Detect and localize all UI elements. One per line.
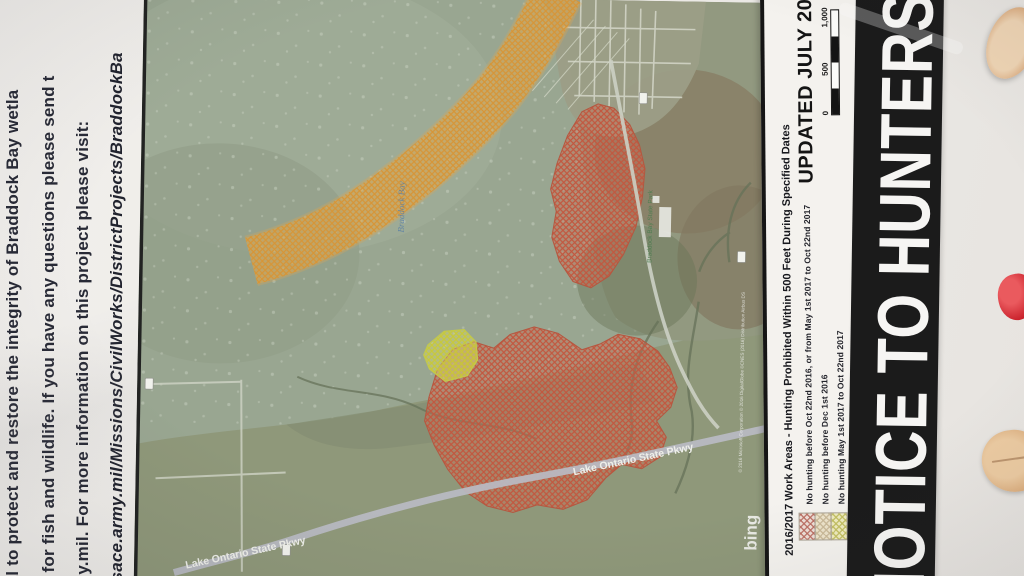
legend-swatch-cream-crosshatch (815, 512, 832, 540)
notice-line-url: usace.army.mil/Missions/CivilWorks/Distr… (107, 52, 127, 576)
scale-tick-500: 500 (821, 63, 830, 76)
legend-swatch-red-crosshatch (799, 513, 816, 541)
legend-item-2: No hunting before Dec 1st 2016 (819, 374, 830, 504)
notice-title-banner: NOTICE TO HUNTERS (847, 0, 944, 576)
notice-line-1: ical to protect and restore the integrit… (3, 90, 23, 576)
scale-bar: 0 500 1,000 (820, 5, 840, 115)
legend-item-3: No hunting May 1st 2017 to Oct 22nd 2017 (835, 330, 847, 504)
fingertip-bottom (978, 426, 1024, 496)
satellite-map-canvas: Lake Ontario State Pkwy Lake Ontario Sta… (134, 0, 780, 576)
scale-tick-0: 0 (821, 111, 830, 116)
scale-bar-graphic (830, 9, 840, 115)
scale-tick-1000: 1,000 (820, 7, 829, 27)
notice-title: NOTICE TO HUNTERS (858, 0, 944, 576)
photo-of-hunting-notice: ical to protect and restore the integrit… (0, 0, 1024, 576)
fingernail-crease (992, 455, 1024, 463)
legend-swatch-yellow-crosshatch (831, 512, 848, 540)
notice-line-3: my.mil. For more information on this pro… (73, 121, 93, 576)
legend-item-1: No hunting before Oct 22nd 2016, or from… (802, 205, 815, 505)
legend-title: 2016/2017 Work Areas - Hunting Prohibite… (780, 124, 796, 556)
notice-line-2: le for fish and wildlife. If you have an… (39, 75, 59, 576)
fingertip-top (977, 0, 1024, 86)
scale-bar-labels: 0 500 1,000 (820, 7, 830, 115)
satellite-map: Lake Ontario State Pkwy Lake Ontario Sta… (134, 0, 780, 576)
red-object (994, 271, 1024, 324)
legend-updated-label: UPDATED JULY 20 (794, 0, 819, 184)
